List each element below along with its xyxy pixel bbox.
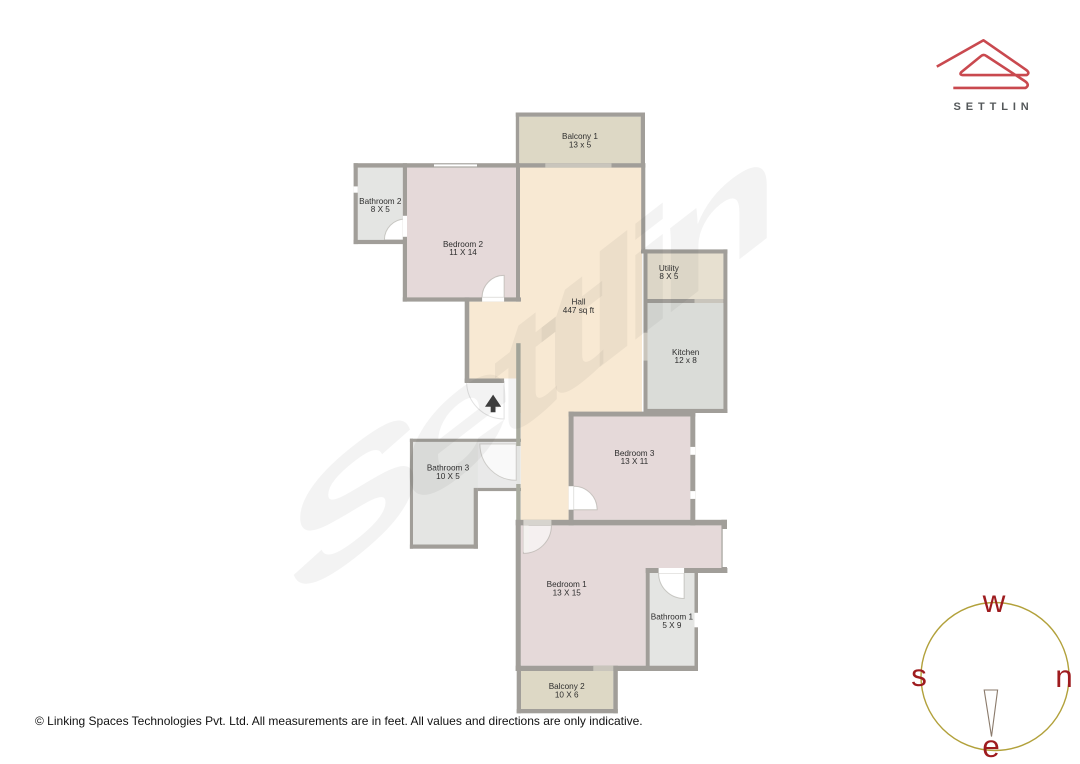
svg-text:w: w xyxy=(982,583,1006,619)
svg-text:e: e xyxy=(982,728,1000,764)
svg-text:8 X 5: 8 X 5 xyxy=(371,205,391,214)
svg-text:13 X 15: 13 X 15 xyxy=(553,588,582,597)
svg-text:10 X 6: 10 X 6 xyxy=(555,690,579,699)
svg-text:13 x 5: 13 x 5 xyxy=(569,140,592,149)
svg-text:13 X 11: 13 X 11 xyxy=(621,457,649,466)
svg-text:5 X 9: 5 X 9 xyxy=(662,621,682,630)
svg-text:SETTLIN: SETTLIN xyxy=(954,101,1034,113)
svg-text:11 X 14: 11 X 14 xyxy=(449,248,477,257)
svg-text:n: n xyxy=(1055,658,1073,694)
svg-text:s: s xyxy=(911,657,927,693)
svg-text:12 x 8: 12 x 8 xyxy=(675,356,698,365)
